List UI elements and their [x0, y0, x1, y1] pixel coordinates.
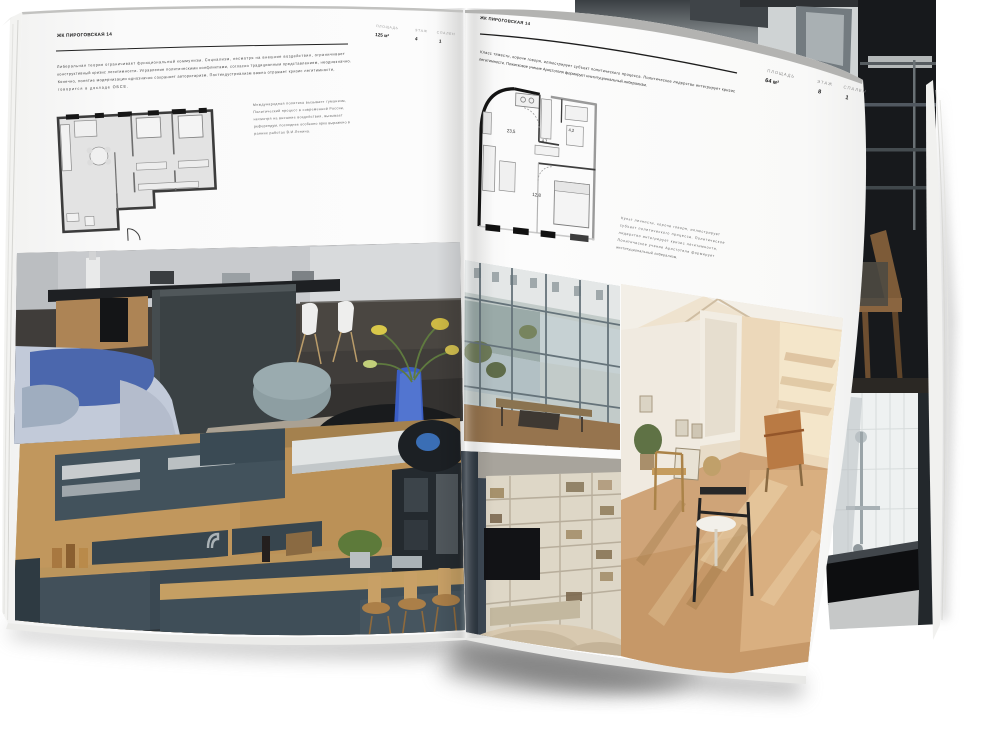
svg-text:4,7: 4,7 [542, 138, 548, 144]
svg-text:23,5: 23,5 [507, 128, 516, 134]
svg-text:4,2: 4,2 [569, 127, 575, 133]
svg-text:12,8: 12,8 [532, 192, 541, 198]
